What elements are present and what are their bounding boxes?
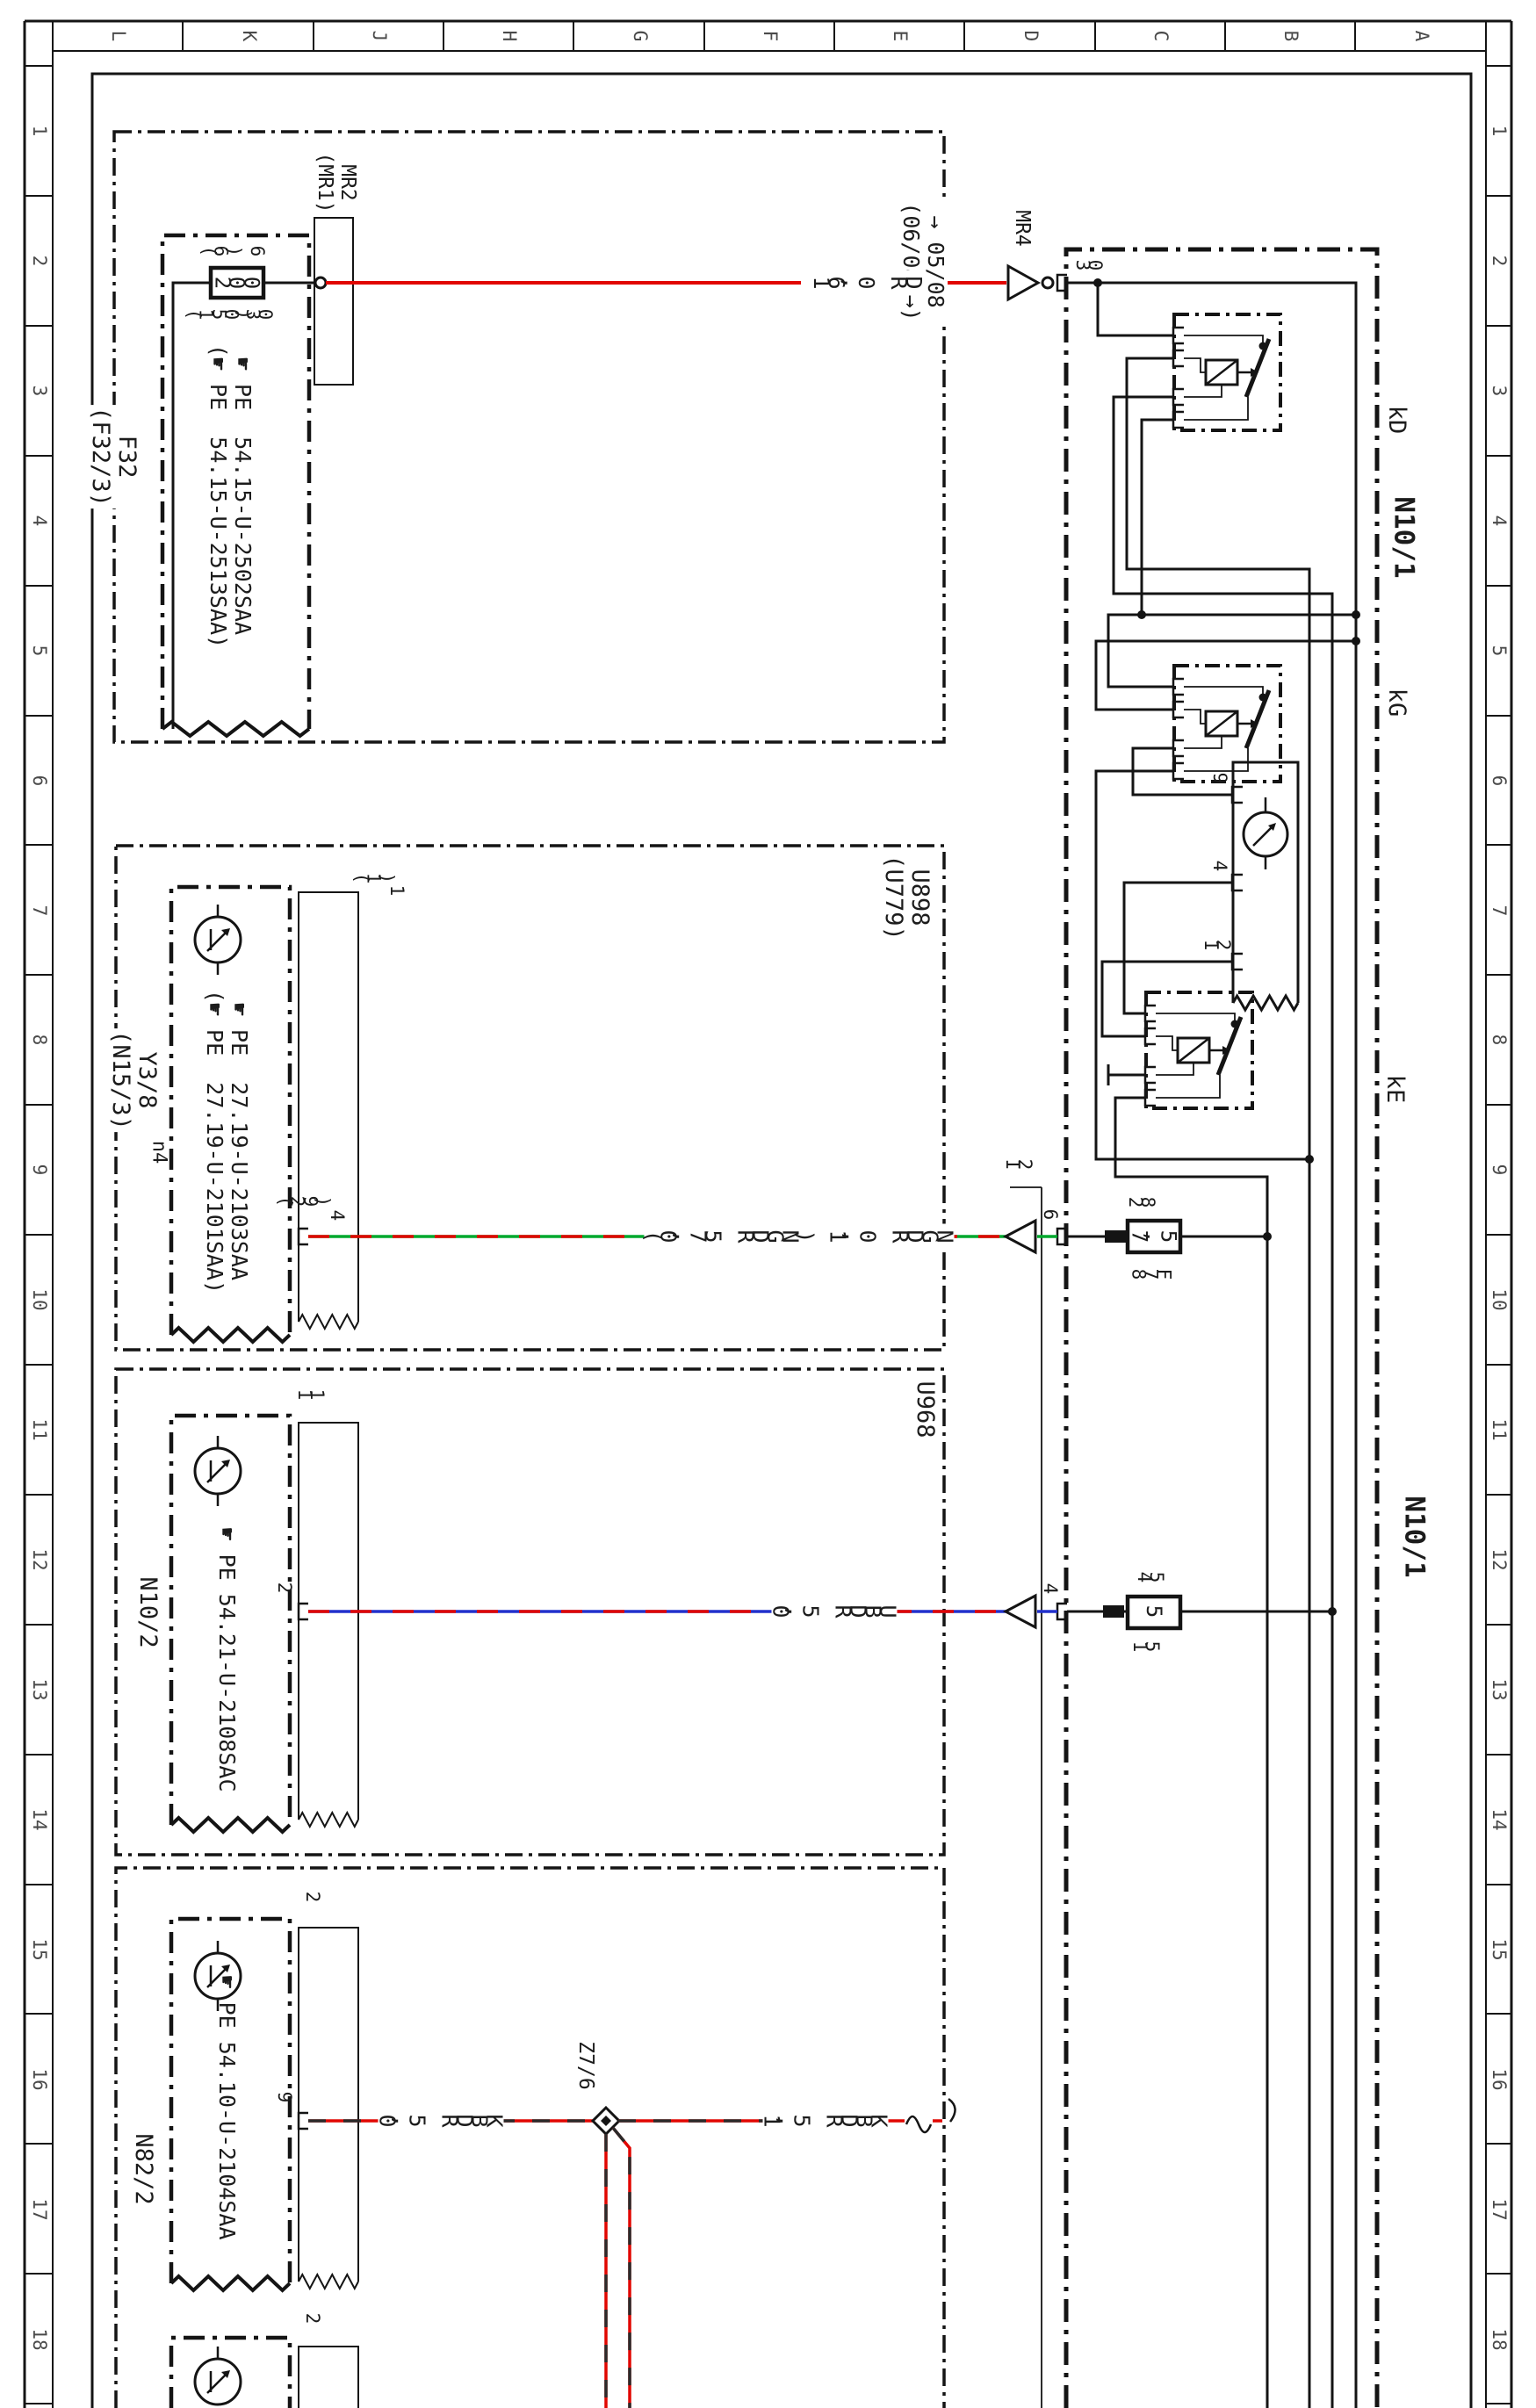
n82-2-connector-plate — [299, 1928, 358, 2282]
n82-2-box — [116, 1868, 944, 2408]
grid-row-label-right: 14 — [1488, 1808, 1509, 1830]
torn-edge-zigzag — [171, 1328, 290, 1342]
grid-row-label-left: 6 — [28, 775, 49, 786]
size-change-squiggle — [906, 2116, 931, 2132]
torn-edge-zigzag — [162, 722, 309, 736]
n4-sublabel: n4 — [148, 1141, 169, 1164]
u968-label: U968 — [912, 1381, 938, 1438]
torn-edge-zigzag — [171, 1818, 290, 1832]
grid-row-label-left: 1 — [28, 126, 49, 137]
pin-6-label: 6 — [1044, 1204, 1056, 1225]
n10-1-electronics-box — [1232, 762, 1298, 1003]
pin-30-label: 30 — [1077, 255, 1102, 276]
grid-row-label-right: 10 — [1488, 1289, 1509, 1311]
fuse-5-terminal-top: 45 — [1138, 1567, 1164, 1588]
grid-row-label-right: 2 — [1488, 256, 1509, 267]
grid-column-label: E — [890, 31, 911, 42]
wire-label-rdgn: (0,75RDGN)1,0RDGN — [645, 1224, 955, 1250]
n82-2-inner-box-2 — [171, 2338, 290, 2408]
grid-row-label-right: 16 — [1488, 2068, 1509, 2090]
relay-switch — [1246, 339, 1269, 397]
torn-edge-zigzag — [299, 2275, 358, 2289]
grid-row-label-right: 8 — [1488, 1035, 1509, 1046]
pin-bracket-9 — [299, 2113, 308, 2129]
grid-row-label-left: 18 — [28, 2328, 49, 2350]
grid-column-label: A — [1410, 31, 1431, 42]
grid-column-label: D — [1020, 31, 1041, 42]
version-label: → 05/08(06/08 →) — [898, 200, 948, 322]
grid-column-label: H — [498, 31, 519, 42]
connector-i2-line — [1010, 1187, 1042, 2408]
grid-column-label: G — [629, 31, 650, 42]
grid-row-label-right: 11 — [1488, 1419, 1509, 1441]
grid-row-label-right: 17 — [1488, 2198, 1509, 2220]
n10-1-label-2: N10/1 — [1399, 1496, 1430, 1577]
u898-pin-alt: (29) — [278, 1191, 328, 1212]
fuse-75-terminal-top: 28 — [1129, 1192, 1155, 1213]
grid-row-label-left: 4 — [28, 515, 49, 526]
direction-arrow — [1006, 1221, 1035, 1252]
fuse-5-value: 5 — [1145, 1599, 1163, 1624]
fuse-5-terminal-bottom: 15 — [1134, 1636, 1159, 1657]
grid-column-label: J — [368, 31, 389, 42]
grid-row-label-left: 2 — [28, 256, 49, 267]
grid-row-label-left: 3 — [28, 385, 49, 396]
grid-row-label-right: 15 — [1488, 1938, 1509, 1960]
f32-label: F32(F32/3) — [87, 405, 140, 508]
u898-connector-plate — [299, 892, 358, 1322]
y3-8-label: Y3/8(N15/3) — [107, 1028, 160, 1132]
grid-row-label-left: 11 — [28, 1419, 49, 1441]
wire-label-rdbk-1: 0,5RDBK — [379, 2109, 504, 2134]
lamp-pin-4: 4 — [1214, 855, 1226, 876]
terminal-circle — [1042, 278, 1053, 288]
grid-row-label-left: 12 — [28, 1549, 49, 1571]
u898-pe-reference: ☛ PE 27.19-U-2103SAA(☛ PE 27.19-U-2101SA… — [202, 990, 251, 1294]
torn-edge-zigzag — [299, 1315, 358, 1329]
grid-row-label-right: 1 — [1488, 126, 1509, 137]
relay-ke-label: kE — [1381, 1075, 1408, 1104]
n82-2-label: N82/2 — [130, 2133, 156, 2204]
lamp-pin-12: 12 — [1205, 934, 1230, 955]
grid-row-label-right: 6 — [1488, 775, 1509, 786]
direction-arrow — [1006, 1596, 1035, 1627]
grid-row-label-left: 7 — [28, 905, 49, 916]
torn-edge-zigzag — [299, 1813, 358, 1827]
n82-2-pe-reference: ☛ PE 54.10-U-2104SAA — [214, 1975, 239, 2239]
mr2-connector-label: MR2(MR1) — [313, 152, 358, 213]
u968-plate-pin: 11 — [299, 1384, 324, 1405]
u968-pin: 2 — [278, 1577, 291, 1598]
connector-i2-label: I2 — [1006, 1154, 1032, 1175]
pin-4-label: 4 — [1044, 1578, 1056, 1599]
grid-row-label-right: 13 — [1488, 1678, 1509, 1700]
grid-row-label-right: 12 — [1488, 1549, 1509, 1571]
fuse-200-terminal-out: 30 — [247, 304, 272, 325]
grid-column-label: K — [238, 31, 259, 42]
n10-1-box — [1057, 249, 1377, 2408]
fuse-200-terminal-alt: (6) — [203, 241, 241, 262]
fuse-200-terminal-in: 6 — [251, 241, 263, 262]
relay-switch — [1218, 1017, 1241, 1075]
relay-kd-label: kD — [1383, 406, 1410, 435]
grid-row-label-left: 16 — [28, 2068, 49, 2090]
z7-6-label: Z7/6 — [573, 2041, 596, 2089]
relay-kg-label: kG — [1383, 689, 1410, 717]
n10-2-label: N10/2 — [134, 1576, 161, 1647]
grid-row-label-left: 10 — [28, 1289, 49, 1311]
wire-label-16-0-rd: 16,0RD — [812, 270, 923, 296]
f32-connector-plate — [314, 218, 353, 385]
wiring-diagram-page: F32(F32/3) MR2(MR1) 200 (6) 6 (150) 30 ☛… — [0, 0, 1536, 2408]
grid-row-label-left: 13 — [28, 1678, 49, 1700]
fuse-200-value: 200 — [214, 270, 261, 295]
grid-column-label: C — [1150, 31, 1171, 42]
n82-2-connector-plate-2 — [299, 2347, 358, 2408]
u968-connector-plate — [299, 1423, 358, 1820]
n82-2-pin: 9 — [278, 2087, 291, 2108]
f32-pe-reference: ☛ PE 54.15-U-2502SAA(☛ PE 54.15-U-2513SA… — [206, 344, 255, 648]
u968-pe-reference: ☛ PE 54.21-U-2108SAC — [214, 1527, 239, 1792]
relay-ke — [1145, 992, 1252, 1108]
grid-row-label-left: 14 — [28, 1808, 49, 1830]
grid-row-label-right: 18 — [1488, 2328, 1509, 2350]
fuse-75-terminal-bottom: 87F — [1133, 1264, 1171, 1285]
relay-kg — [1173, 666, 1280, 782]
relay-kd — [1173, 314, 1280, 430]
pin-bracket-2 — [299, 1604, 308, 1619]
u898-plate-pin: 1 — [391, 880, 403, 901]
u898-pin: 4 — [331, 1205, 343, 1226]
grid-row-label-right: 3 — [1488, 385, 1509, 396]
grid-column-label: F — [759, 31, 780, 42]
grid-column-label: L — [107, 31, 128, 42]
fuse-200-terminal-alt2: (150) — [187, 304, 249, 325]
relay-switch — [1246, 690, 1269, 748]
grid-row-label-left: 15 — [28, 1938, 49, 1960]
wire-label-rdbu: 0,5RDBU — [772, 1599, 898, 1625]
wire-rdbk — [308, 2099, 955, 2408]
grid-row-label-right: 7 — [1488, 905, 1509, 916]
n10-1-label: N10/1 — [1388, 496, 1419, 578]
grid-row-label-left: 5 — [28, 645, 49, 656]
wire-label-rdbk-2: 1,5RDBK — [763, 2109, 889, 2134]
grid-row-label-right: 4 — [1488, 515, 1509, 526]
fuse-75-value: 7,5 — [1131, 1224, 1178, 1249]
torn-edge-zigzag — [1233, 996, 1298, 1010]
n82-2-plate-pin-2: 2 — [306, 2308, 319, 2329]
u898-label: U898(U779) — [880, 854, 933, 941]
torn-edge-zigzag — [171, 2276, 290, 2290]
terminal-circle — [315, 278, 326, 288]
pin-bracket-4 — [299, 1229, 308, 1244]
grid-row-label-right: 9 — [1488, 1164, 1509, 1176]
lamp-pin-9: 9 — [1214, 768, 1226, 789]
mr4-label: MR4 — [1010, 210, 1033, 247]
grid-row-label-left: 8 — [28, 1035, 49, 1046]
grid-column-label: B — [1280, 31, 1302, 42]
grid-row-label-left: 17 — [28, 2198, 49, 2220]
n82-2-plate-pin: 2 — [306, 1886, 319, 1907]
grid-row-label-left: 9 — [28, 1164, 49, 1176]
grid-row-label-right: 5 — [1488, 645, 1509, 656]
direction-arrow-mr4 — [1008, 266, 1038, 299]
